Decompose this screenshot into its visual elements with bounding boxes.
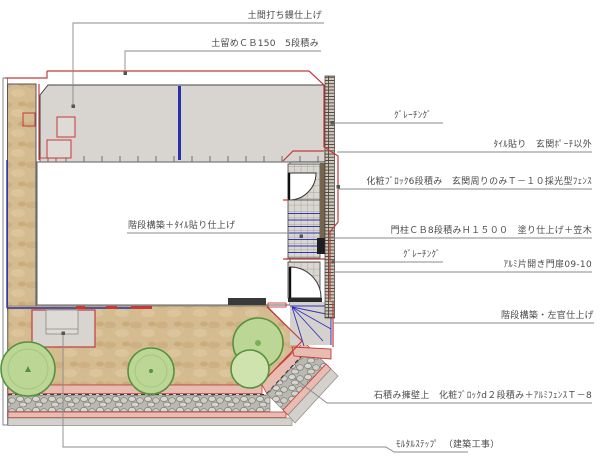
annotation-stone-wall-fence: 石積み擁壁上 化粧ﾌﾞﾛｯｸd２段積み＋ｱﾙﾐﾌｪﾝｽＴ－8 [374,391,592,401]
annotation-grating-mid: ｸﾞﾚｰﾁﾝｸﾞ [403,250,441,260]
annotation-mortar-step: ﾓﾙﾀﾙｽﾃｯﾌﾟ （建築工事） [396,440,500,450]
outer-edge-band [8,418,292,426]
annotation-retaining-cb150: 土留めＣＢ150 5段積み [211,39,319,49]
annotation-block-fence: 化粧ﾌﾞﾛｯｸ6段積み 玄関周りのみＴ－１０採光型ﾌｪﾝｽ [366,177,592,187]
annotation-gate-pillar: 門柱ＣＢ8段積みＨ１５００ 塗り仕上げ＋笠木 [391,226,592,236]
annotation-doma-finish: 土間打ち鏝仕上げ [248,11,322,21]
annotation-tile-finish: ﾀｲﾙ貼り 玄関ﾎﾟｰﾁ以外 [494,140,592,150]
utility-box-2 [47,140,71,158]
gate-threshold [288,298,322,302]
stone-band [8,395,270,412]
annotation-gate-door: ｱﾙﾐ片開き門扉09-10 [503,260,592,270]
annotation-stair-tile: 階段構築＋ﾀｲﾙ貼り仕上げ [128,221,235,231]
tiled-stairs [288,200,320,258]
tree [231,350,269,388]
concrete-slab [40,85,325,167]
utility-box-1 [57,117,75,137]
site-plan-drawing: 土間打ち鏝仕上げ 土留めＣＢ150 5段積み ｸﾞﾚｰﾁﾝｸﾞ ﾀｲﾙ貼り 玄関… [0,0,600,462]
annotation-grating-top: ｸﾞﾚｰﾁﾝｸﾞ [394,111,432,121]
house-step [228,298,266,305]
mortar-step [32,310,95,347]
annotation-stair-plaster: 階段構築・左官仕上げ [501,311,594,321]
house-footprint [37,162,290,309]
